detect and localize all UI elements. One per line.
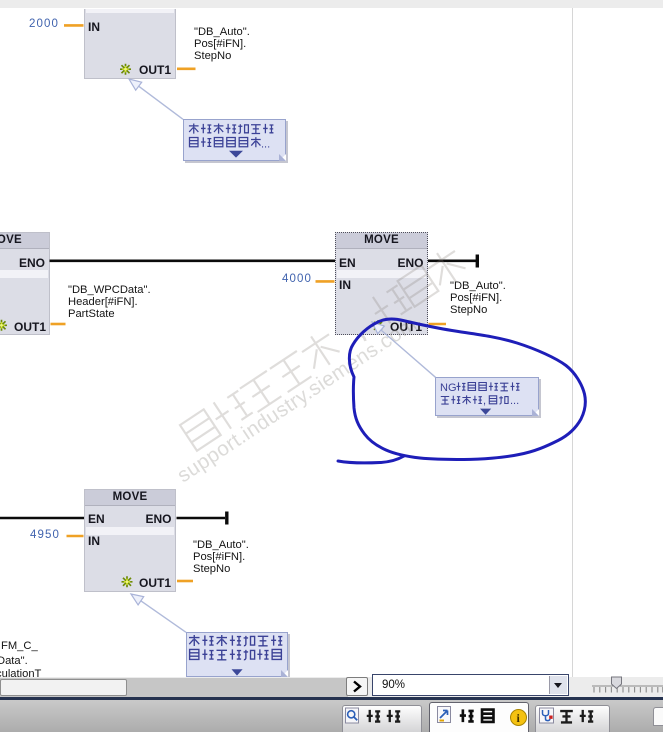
svg-text:support.industry.siemens.com: support.industry.siemens.com <box>173 312 421 487</box>
